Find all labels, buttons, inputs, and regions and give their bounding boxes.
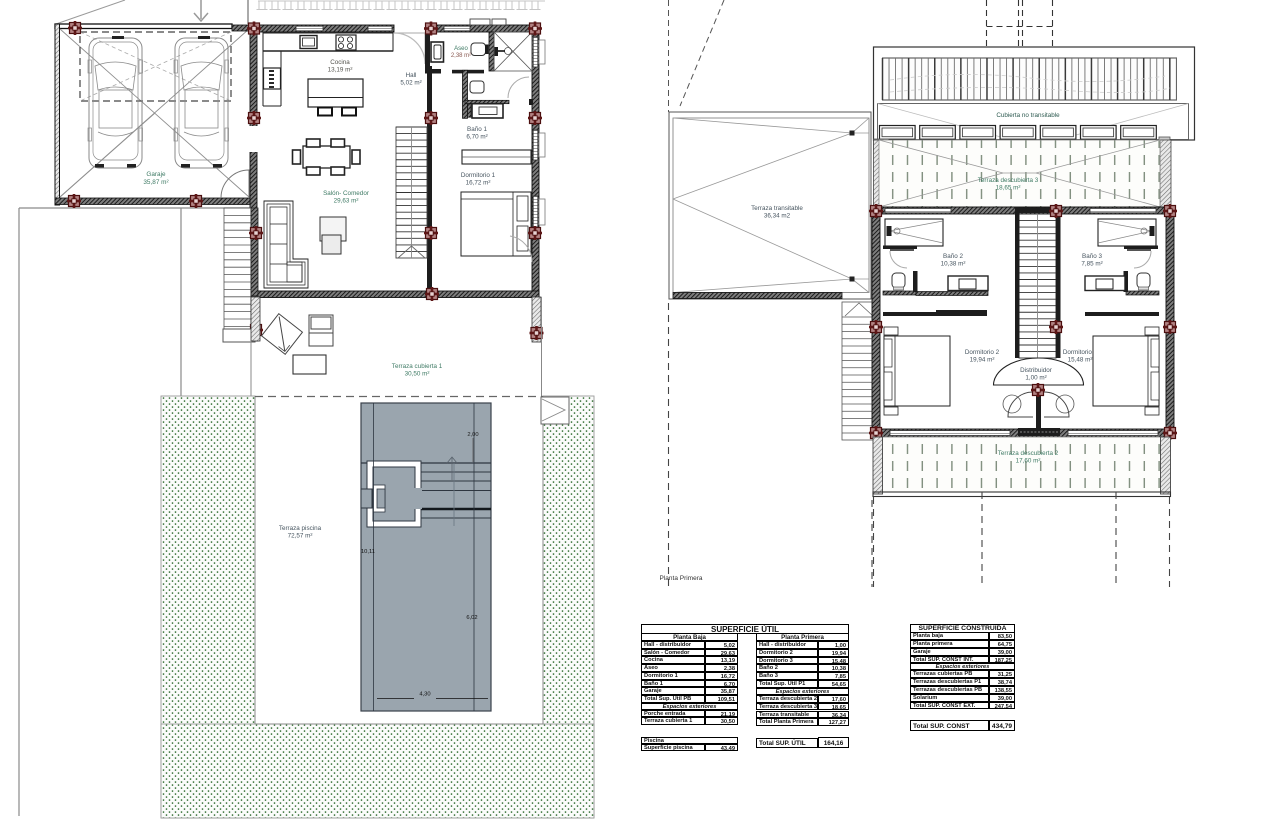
- svg-text:5,02 m²: 5,02 m²: [400, 80, 421, 87]
- svg-text:Distribuidor: Distribuidor: [1020, 367, 1052, 374]
- svg-text:30,50 m²: 30,50 m²: [405, 371, 430, 378]
- svg-text:10,11: 10,11: [361, 549, 375, 555]
- svg-text:1,00 m²: 1,00 m²: [1025, 375, 1046, 382]
- svg-text:2,38 m²: 2,38 m²: [451, 53, 471, 59]
- svg-text:Baño 2: Baño 2: [943, 253, 963, 260]
- svg-text:Salón- Comedor: Salón- Comedor: [323, 190, 369, 197]
- svg-text:Planta Primera: Planta Primera: [660, 575, 703, 582]
- svg-text:Cocina: Cocina: [330, 59, 350, 66]
- svg-text:Dormitorio 1: Dormitorio 1: [461, 172, 496, 179]
- svg-text:18,65 m²: 18,65 m²: [996, 185, 1021, 192]
- svg-text:Terraza descubierta 3: Terraza descubierta 3: [978, 177, 1039, 184]
- svg-text:6,70 m²: 6,70 m²: [466, 134, 487, 141]
- svg-text:Cubierta no transitable: Cubierta no transitable: [996, 112, 1060, 119]
- svg-text:Aseo: Aseo: [454, 46, 468, 52]
- svg-text:72,57 m²: 72,57 m²: [288, 533, 313, 540]
- svg-text:16,72 m²: 16,72 m²: [466, 180, 491, 187]
- svg-text:Hall: Hall: [406, 72, 417, 79]
- svg-text:10,38 m²: 10,38 m²: [941, 261, 966, 268]
- svg-text:Dormitorio 2: Dormitorio 2: [965, 349, 1000, 356]
- svg-text:Terraza transitable: Terraza transitable: [751, 205, 803, 212]
- svg-text:Terraza cubierta 1: Terraza cubierta 1: [392, 363, 443, 370]
- svg-text:17,60 m²: 17,60 m²: [1016, 458, 1041, 465]
- svg-text:Dormitorio 3: Dormitorio 3: [1063, 349, 1098, 356]
- svg-text:Terraza piscina: Terraza piscina: [279, 525, 322, 532]
- svg-text:Terraza descubierta 2: Terraza descubierta 2: [998, 450, 1059, 457]
- svg-text:2,00: 2,00: [467, 432, 478, 438]
- svg-text:29,63 m²: 29,63 m²: [334, 198, 359, 205]
- svg-text:Baño 1: Baño 1: [467, 126, 487, 133]
- svg-text:4,30: 4,30: [419, 692, 430, 698]
- svg-text:15,48 m²: 15,48 m²: [1068, 357, 1093, 364]
- svg-text:6,02: 6,02: [466, 615, 477, 621]
- svg-text:35,87 m²: 35,87 m²: [143, 179, 168, 186]
- svg-text:13,19 m²: 13,19 m²: [328, 67, 353, 74]
- svg-text:19,94 m²: 19,94 m²: [970, 357, 995, 364]
- svg-text:36,34 m2: 36,34 m2: [764, 213, 791, 220]
- svg-text:7,85 m²: 7,85 m²: [1081, 261, 1102, 268]
- svg-text:Baño 3: Baño 3: [1082, 253, 1102, 260]
- svg-text:Garaje: Garaje: [146, 171, 166, 178]
